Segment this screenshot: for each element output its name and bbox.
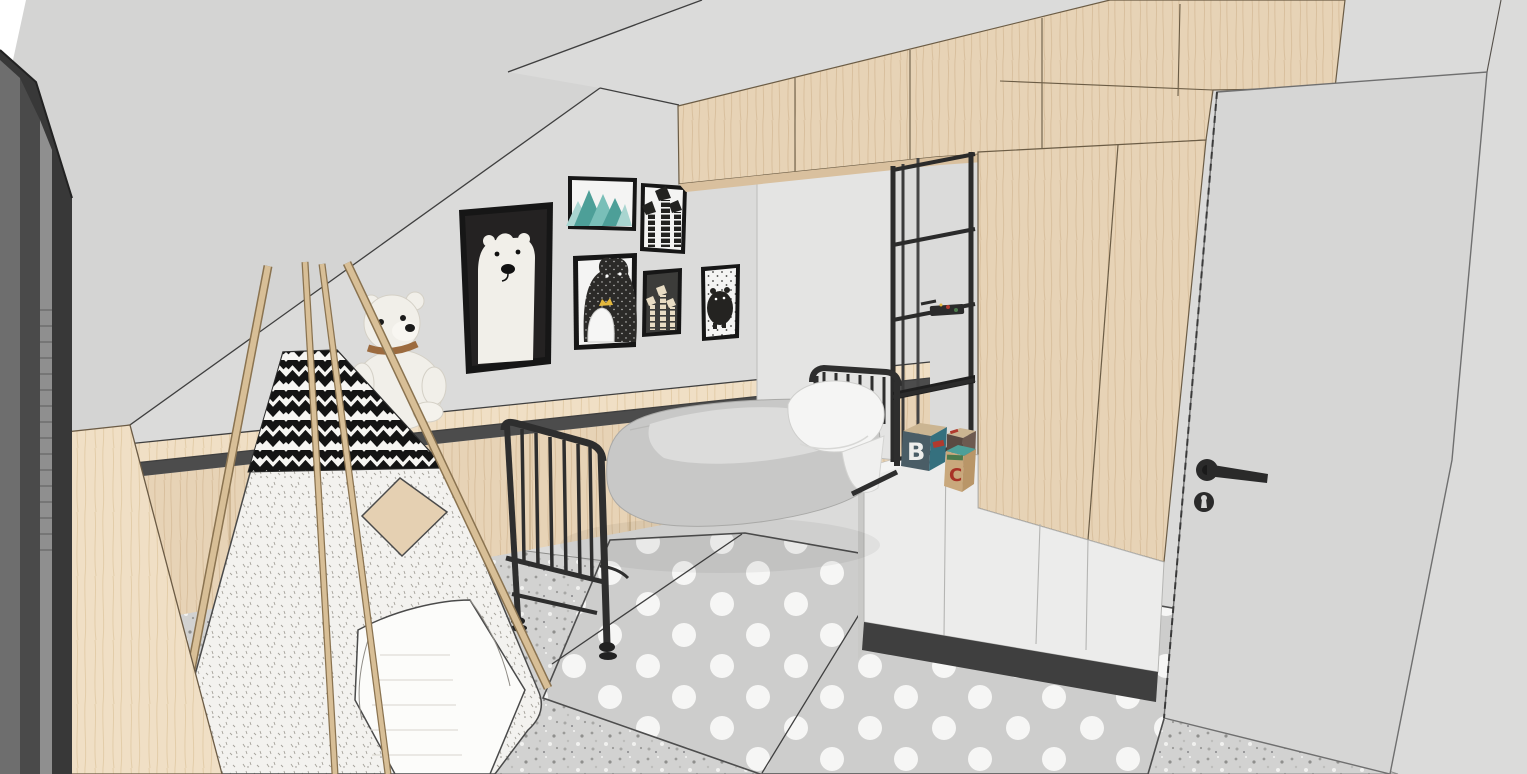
poster-polar-bear [459, 202, 553, 374]
window-glass-strip [40, 120, 52, 774]
poster-giraffes [640, 183, 687, 254]
block-letter-b: B [907, 438, 925, 466]
poster-giraffes-small [642, 268, 682, 337]
poster-mountains [566, 176, 637, 231]
poster-bear-and-cub [573, 253, 637, 350]
poster-dotted-bear [701, 264, 740, 341]
block-letter-c: C [949, 465, 962, 486]
room-render-viewport[interactable]: 3D SketchUp-style rendering of an attic … [0, 0, 1527, 774]
scene-canvas[interactable]: W B C [0, 0, 1527, 774]
polar-bear-figure [478, 233, 535, 364]
